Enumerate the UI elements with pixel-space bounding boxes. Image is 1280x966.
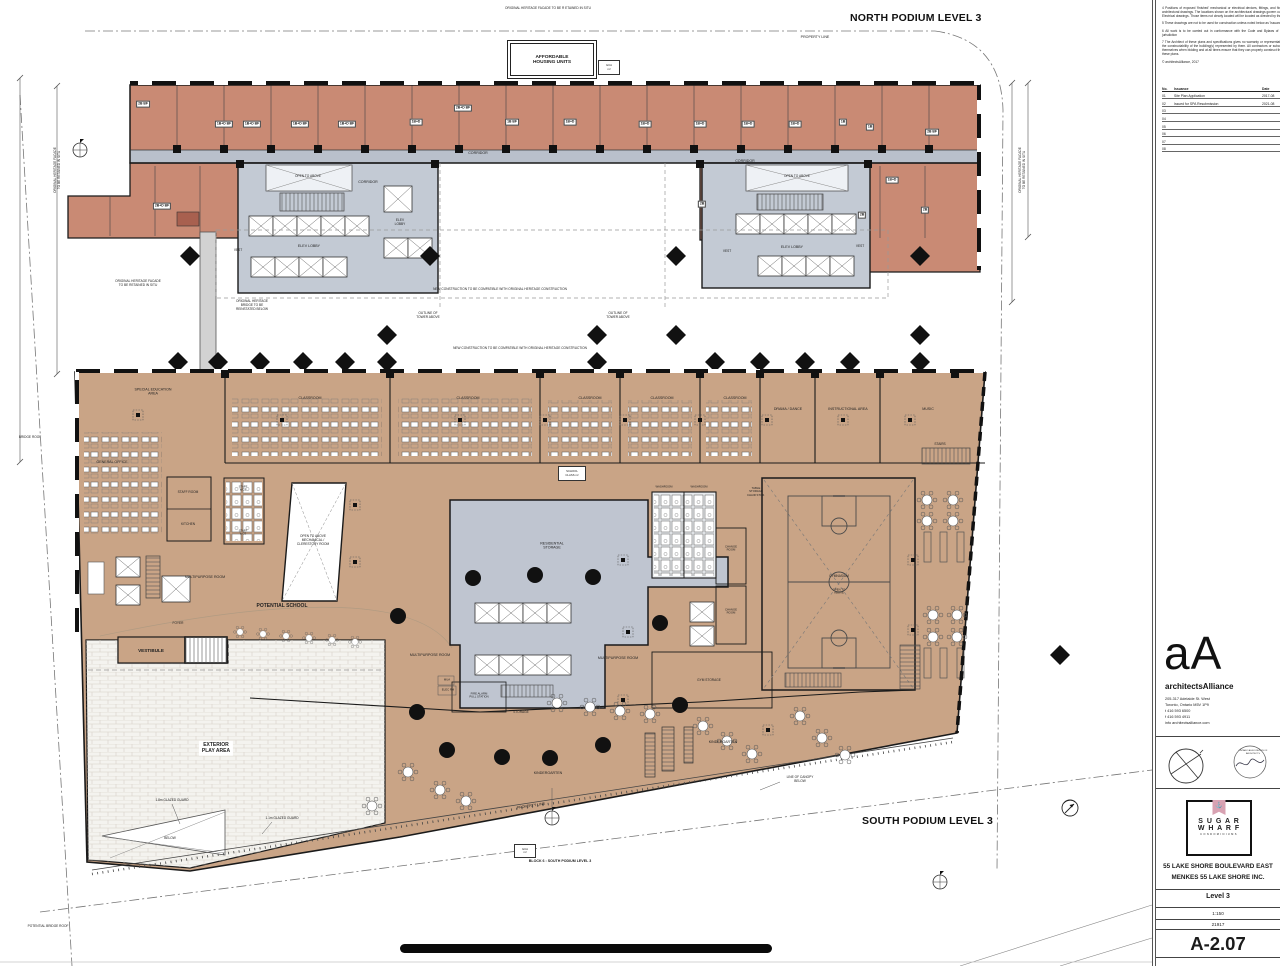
unit-tag: 1B+D bbox=[410, 119, 423, 126]
firm-address: 205-317 Adelaide St. West Toronto, Ontar… bbox=[1165, 696, 1210, 726]
south-podium bbox=[75, 369, 985, 874]
brand-line3: CONDOMINIUMS bbox=[1188, 833, 1250, 836]
note-paragraph: 7 The Architect of these plans and speci… bbox=[1162, 40, 1280, 57]
unit-tag: 1B+D bbox=[639, 121, 652, 128]
drawing-sheet: NORTH PODIUM LEVEL 3 SOUTH PODIUM LEVEL … bbox=[0, 0, 1280, 966]
unit-tag: 2B bbox=[858, 212, 866, 219]
issuance-row: 07 bbox=[1162, 137, 1280, 145]
col-no: No. bbox=[1162, 87, 1174, 91]
south-plan-title: SOUTH PODIUM LEVEL 3 bbox=[862, 815, 993, 827]
issuance-row: 02Issued for SPA Resubmission2021-08 bbox=[1162, 99, 1280, 107]
unit-tag: 1B bbox=[839, 119, 847, 126]
bottom-scrubber-bar[interactable] bbox=[400, 944, 772, 953]
sheet-number: A-2.07 bbox=[1156, 933, 1280, 955]
affordable-housing-legend: AFFORDABLE HOUSING UNITS bbox=[510, 43, 594, 76]
separator bbox=[1156, 957, 1280, 958]
unit-tag: 2B bbox=[698, 201, 706, 208]
note-paragraph: 6 All work is to be carried out in confo… bbox=[1162, 29, 1280, 37]
brand-line2: W H A R F bbox=[1188, 825, 1250, 832]
oaa-seal-text: ONTARIO ASSOCIATION OF ARCHITECTS bbox=[1234, 750, 1272, 755]
north-plan-title: NORTH PODIUM LEVEL 3 bbox=[850, 12, 982, 24]
issuance-row: 05 bbox=[1162, 122, 1280, 130]
unit-tag: 1B+D bbox=[742, 121, 755, 128]
unit-tag: 2B bbox=[921, 207, 929, 214]
title-block: 4 Positions of exposed 'finished' mechan… bbox=[1156, 0, 1280, 966]
brand-line1: S U G A R bbox=[1188, 818, 1250, 825]
unit-tag: 2B+D BF bbox=[454, 105, 472, 112]
firm-logo: aA bbox=[1164, 630, 1222, 676]
issuance-row: 06 bbox=[1162, 130, 1280, 138]
separator bbox=[1156, 788, 1280, 789]
issuance-header-row: No. Issuance Date bbox=[1162, 84, 1280, 92]
gca-box-north: GCA m² bbox=[598, 60, 620, 75]
unit-tag: 2B BF bbox=[136, 101, 150, 108]
firm-name: architectsAlliance bbox=[1165, 682, 1233, 691]
separator bbox=[1156, 889, 1280, 890]
compass-stamp-icon bbox=[1169, 749, 1203, 783]
col-issuance: Issuance bbox=[1174, 87, 1262, 91]
separator bbox=[1156, 907, 1280, 908]
north-arrow-icon bbox=[1062, 800, 1078, 816]
unit-tag: 1B+D BF bbox=[338, 121, 356, 128]
unit-tag: 1B+D bbox=[694, 121, 707, 128]
unit-tag: 1B bbox=[866, 124, 874, 131]
unit-tag: 2B BF bbox=[925, 129, 939, 136]
unit-tag: 1B+D BF bbox=[215, 121, 233, 128]
unit-tag: 1B+D BF bbox=[243, 121, 261, 128]
issuance-row: 08 bbox=[1162, 145, 1280, 153]
gca-box-south: GCA m² bbox=[514, 844, 536, 858]
school-class-box: SCHOOL CLASS m² bbox=[558, 466, 586, 481]
unit-tag: 1B+D BF bbox=[291, 121, 309, 128]
unit-tag: 1B BF bbox=[505, 119, 519, 126]
floor-plan-geometry bbox=[0, 0, 1280, 966]
separator bbox=[1156, 919, 1280, 920]
unit-tag: 1B+D bbox=[886, 177, 899, 184]
sugar-wharf-logo: ⚓ S U G A R W H A R F CONDOMINIUMS bbox=[1186, 800, 1252, 856]
issuance-row: 04 bbox=[1162, 114, 1280, 122]
sheet-title: Level 3 bbox=[1156, 893, 1280, 900]
titleblock-border bbox=[1152, 0, 1153, 966]
general-notes: 4 Positions of exposed 'finished' mechan… bbox=[1162, 6, 1280, 67]
project-client: MENKES 55 LAKE SHORE INC. bbox=[1156, 874, 1280, 881]
separator bbox=[1156, 929, 1280, 930]
drawing-scale: 1:150 bbox=[1156, 911, 1280, 916]
note-paragraph: 5 These drawings are not to be used for … bbox=[1162, 21, 1280, 25]
col-date: Date bbox=[1262, 87, 1280, 91]
unit-tag: 2B+D BF bbox=[153, 203, 171, 210]
issuance-row: 01Site Plan Application2017-08 bbox=[1162, 92, 1280, 100]
separator bbox=[1156, 736, 1280, 737]
note-paragraph: © architectsAlliance, 2017 bbox=[1162, 60, 1280, 64]
project-number: 21917 bbox=[1156, 922, 1280, 927]
project-address: 55 LAKE SHORE BOULEVARD EAST bbox=[1156, 863, 1280, 870]
unit-tag: 1B+D bbox=[564, 119, 577, 126]
note-paragraph: 4 Positions of exposed 'finished' mechan… bbox=[1162, 6, 1280, 18]
unit-tag: 1B+D bbox=[789, 121, 802, 128]
issuance-table: No. Issuance Date 01Site Plan Applicatio… bbox=[1162, 84, 1280, 152]
issuance-row: 03 bbox=[1162, 107, 1280, 115]
anchor-icon: ⚓ bbox=[1213, 800, 1226, 815]
